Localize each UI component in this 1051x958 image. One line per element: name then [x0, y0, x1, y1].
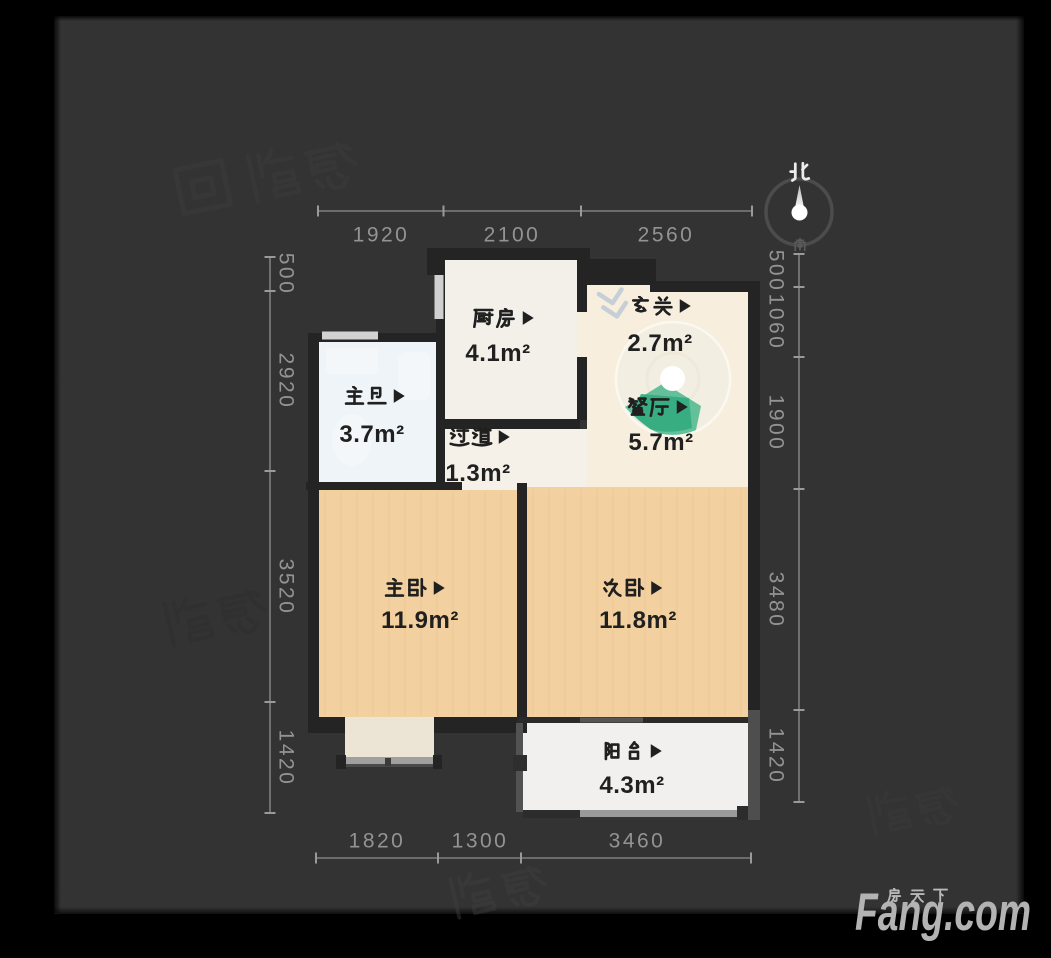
svg-text:5.7m²: 5.7m² — [628, 429, 693, 456]
svg-text:1300: 1300 — [452, 830, 509, 853]
svg-text:3520: 3520 — [274, 559, 297, 616]
svg-text:1920: 1920 — [353, 224, 410, 247]
svg-text:3480: 3480 — [764, 572, 787, 629]
svg-text:1420: 1420 — [764, 728, 787, 785]
svg-text:2920: 2920 — [274, 353, 297, 410]
svg-text:2.7m²: 2.7m² — [627, 330, 692, 357]
svg-text:2560: 2560 — [638, 224, 695, 247]
svg-text:11.9m²: 11.9m² — [381, 607, 459, 634]
svg-text:4.3m²: 4.3m² — [599, 772, 664, 799]
svg-text:3.7m²: 3.7m² — [339, 421, 404, 448]
svg-text:4.1m²: 4.1m² — [465, 340, 530, 367]
svg-text:1060: 1060 — [764, 294, 787, 351]
svg-text:1900: 1900 — [764, 395, 787, 452]
svg-text:3460: 3460 — [609, 830, 666, 853]
svg-text:11.8m²: 11.8m² — [599, 607, 677, 634]
svg-text:Fang.com: Fang.com — [855, 883, 1031, 942]
svg-text:500: 500 — [764, 250, 787, 293]
svg-text:1420: 1420 — [274, 730, 297, 787]
svg-text:1.3m²: 1.3m² — [445, 460, 510, 487]
svg-text:2100: 2100 — [484, 224, 541, 247]
svg-text:1820: 1820 — [349, 830, 406, 853]
svg-text:500: 500 — [274, 253, 297, 296]
